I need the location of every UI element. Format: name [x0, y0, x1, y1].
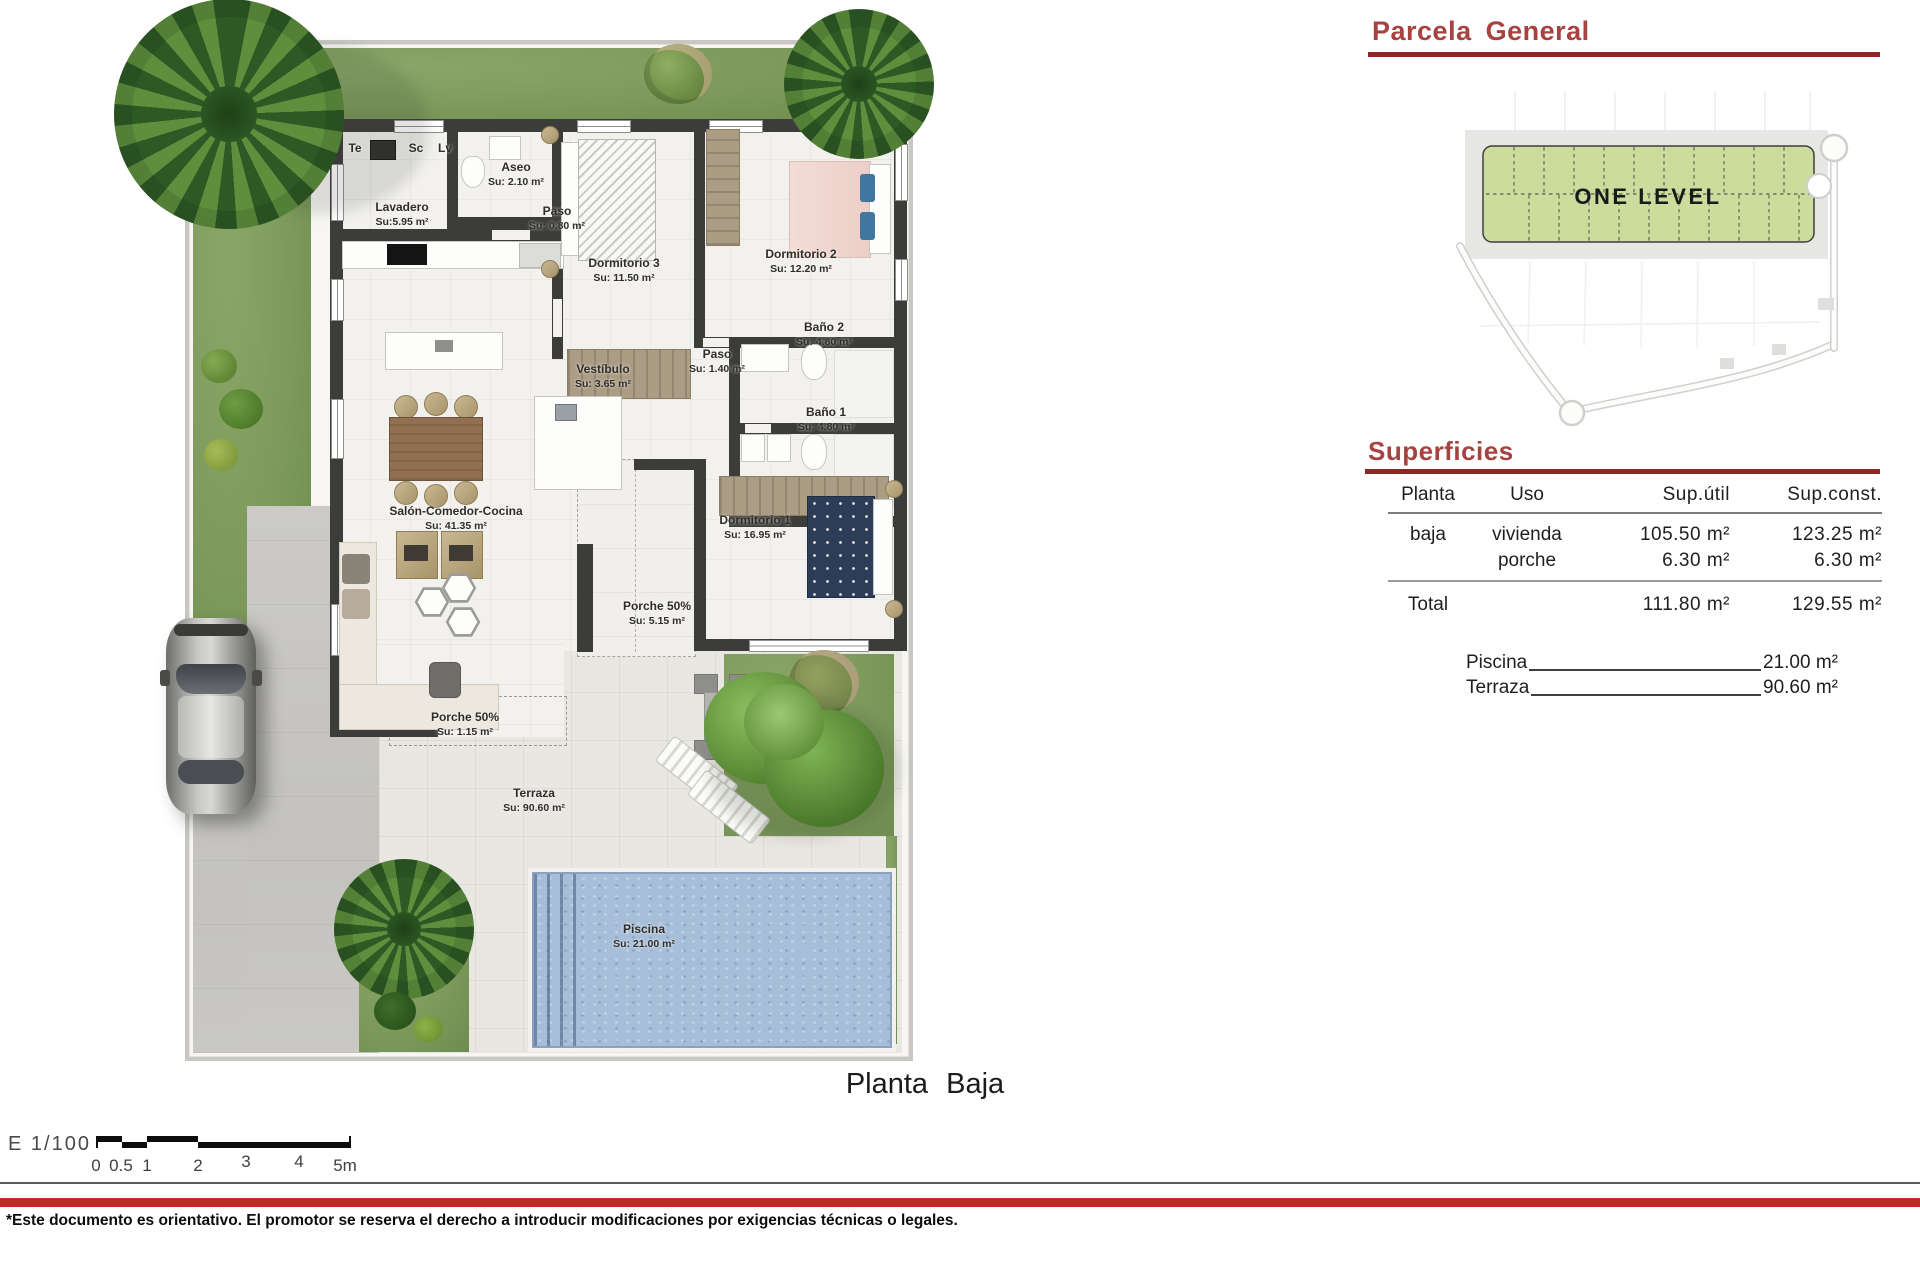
- appliance-label-sc: Sc: [409, 141, 424, 157]
- scale-tick: 1: [142, 1156, 151, 1176]
- scale-tick: 0: [91, 1156, 100, 1176]
- sofa-cushion: [342, 554, 370, 584]
- leader-line: [1529, 668, 1761, 671]
- car-icon: [166, 618, 256, 814]
- sideboard-item: [435, 340, 453, 352]
- car-mirror: [160, 670, 170, 686]
- bush-icon: [204, 439, 238, 471]
- dining-chair: [424, 392, 448, 416]
- leader-line: [1531, 693, 1761, 696]
- entrance-pillar: [577, 544, 593, 652]
- stool-cushion: [449, 545, 473, 561]
- room-label-paso-2: PasoSu: 1.40 m²: [689, 347, 745, 376]
- blue-cushion: [860, 212, 875, 240]
- floor-plan: Te Sc Lv AseoSu: 2.10 m² LavaderoSu:5.95…: [185, 40, 913, 1061]
- car-mirror: [252, 670, 262, 686]
- extra-label: Piscina: [1466, 652, 1527, 674]
- sofa-cushion: [342, 589, 370, 619]
- table-cell-total: 111.80 m²: [1586, 582, 1730, 618]
- patio-chair: [694, 674, 718, 694]
- col-header: Uso: [1468, 482, 1586, 514]
- window: [331, 399, 344, 459]
- bush-icon: [413, 1016, 443, 1042]
- superficies-table: Planta Uso Sup.útil Sup.const. baja vivi…: [1388, 482, 1882, 618]
- window: [895, 144, 908, 201]
- room-label-dormitorio-2: Dormitorio 2Su: 12.20 m²: [765, 247, 836, 276]
- footer-thin-rule: [0, 1182, 1920, 1184]
- bathroom-sink: [741, 434, 765, 462]
- extra-row-terraza: Terraza 90.60 m²: [1466, 677, 1838, 699]
- bathroom-sink: [767, 434, 791, 462]
- door-gap: [492, 230, 530, 240]
- footer-red-bar: [0, 1198, 1920, 1207]
- palm-tree-icon: [114, 0, 344, 229]
- site-label: ONE LEVEL: [1574, 184, 1721, 209]
- stool-cushion: [404, 545, 428, 561]
- table-cell: [1388, 548, 1468, 582]
- parcela-title: Parcela General: [1372, 16, 1590, 47]
- table-cell: 6.30 m²: [1586, 548, 1730, 582]
- plot-lines-top: [1515, 92, 1810, 130]
- page-title: Planta Baja: [735, 1068, 1115, 1101]
- superficies-title: Superficies: [1368, 436, 1514, 467]
- door-gap: [553, 299, 562, 337]
- bathroom-sink: [741, 344, 789, 372]
- bush-icon: [374, 992, 416, 1030]
- bed3-duvet: [578, 139, 656, 261]
- toilet: [801, 434, 827, 470]
- palm-tree-icon: [784, 9, 934, 159]
- bush-icon: [219, 389, 263, 429]
- dining-chair: [394, 395, 418, 419]
- car-grille: [174, 624, 248, 636]
- plot-lines-bottom: [1480, 262, 1820, 348]
- room-label-porche-1: Porche 50%Su: 1.15 m²: [431, 710, 499, 739]
- table-cell: 6.30 m²: [1730, 548, 1882, 582]
- island-sink: [555, 404, 577, 421]
- scale-tick: 4: [294, 1152, 303, 1172]
- scale-tick: 5m: [333, 1156, 357, 1176]
- table-cell: 105.50 m²: [1586, 514, 1730, 548]
- site-plan: ONE LEVEL: [1420, 86, 1900, 434]
- room-label-porche-5: Porche 50%Su: 5.15 m²: [623, 599, 691, 628]
- blue-cushion: [860, 174, 875, 202]
- bush-icon: [201, 349, 237, 383]
- door-gap: [703, 338, 731, 347]
- window: [331, 279, 344, 321]
- window: [895, 259, 908, 301]
- disclaimer-text: *Este documento es orientativo. El promo…: [6, 1212, 1606, 1230]
- pool-steps: [534, 874, 586, 1046]
- car-windshield: [176, 664, 246, 694]
- road-bulb: [1807, 174, 1831, 198]
- kitchen-island: [534, 396, 622, 490]
- room-label-vestibulo: VestíbuloSu: 3.65 m²: [575, 362, 631, 391]
- room-label-bano-2: Baño 2Su: 4.80 m²: [796, 320, 852, 349]
- page: Te Sc Lv AseoSu: 2.10 m² LavaderoSu:5.95…: [0, 0, 1920, 1280]
- nightstand: [541, 260, 559, 278]
- flower-bush-icon: [644, 44, 712, 104]
- col-header: Sup.útil: [1586, 482, 1730, 514]
- extra-label: Terraza: [1466, 677, 1529, 699]
- window: [577, 120, 631, 133]
- pool: [532, 872, 892, 1048]
- dining-chair: [454, 481, 478, 505]
- aseo-sink: [489, 136, 521, 160]
- room-label-piscina: PiscinaSu: 21.00 m²: [613, 922, 675, 951]
- room-label-paso: PasoSu: 0.80 m²: [529, 204, 585, 233]
- scale-bar: E 1/100 0 0.5 1 2 3 4 5m: [8, 1130, 408, 1182]
- wall: [634, 459, 696, 470]
- extra-row-piscina: Piscina 21.00 m²: [1466, 652, 1838, 674]
- bed1-pillows: [873, 499, 893, 595]
- cooktop: [387, 244, 427, 265]
- appliance-label-lv: Lv: [438, 141, 452, 157]
- scale-tick: 3: [241, 1152, 250, 1172]
- dining-chair: [454, 395, 478, 419]
- tree-icon: [744, 684, 824, 760]
- wall: [694, 119, 705, 341]
- superficies-rule: [1365, 469, 1880, 474]
- scale-tick: 0.5: [109, 1156, 133, 1176]
- room-label-lavadero: LavaderoSu:5.95 m²: [375, 200, 428, 229]
- room-label-dormitorio-3: Dormitorio 3Su: 11.50 m²: [588, 256, 659, 285]
- table-cell: baja: [1388, 514, 1468, 548]
- bed1-duvet: [807, 496, 875, 598]
- appliance-label-te: Te: [348, 141, 361, 157]
- wall: [694, 459, 706, 651]
- extra-value: 21.00 m²: [1763, 652, 1838, 674]
- scale-ruler: [96, 1136, 352, 1148]
- scale-tick: 2: [193, 1156, 202, 1176]
- sliding-door: [749, 640, 869, 652]
- aseo-toilet: [461, 156, 485, 188]
- room-label-salon: Salón-Comedor-CocinaSu: 41.35 m²: [389, 504, 522, 533]
- door-gap: [745, 424, 771, 433]
- dining-table: [389, 417, 483, 481]
- toilet: [801, 344, 827, 380]
- car-roof: [178, 696, 244, 758]
- table-cell: porche: [1468, 548, 1586, 582]
- room-label-aseo: AseoSu: 2.10 m²: [488, 160, 544, 189]
- palm-tree-icon: [334, 859, 474, 999]
- dining-chair: [394, 481, 418, 505]
- extra-value: 90.60 m²: [1763, 677, 1838, 699]
- table-cell: [1468, 582, 1586, 618]
- table-cell-total: Total: [1388, 582, 1468, 618]
- room-label-terraza: TerrazaSu: 90.60 m²: [503, 786, 565, 815]
- col-header: Planta: [1388, 482, 1468, 514]
- scale-label: E 1/100: [8, 1133, 91, 1156]
- table-cell: vivienda: [1468, 514, 1586, 548]
- parcela-rule: [1368, 52, 1880, 57]
- col-header: Sup.const.: [1730, 482, 1882, 514]
- table-cell: 123.25 m²: [1730, 514, 1882, 548]
- table-cell-total: 129.55 m²: [1730, 582, 1882, 618]
- bed2-duvet: [789, 161, 871, 258]
- room-label-bano-1: Baño 1Su: 4.80 m²: [798, 405, 854, 434]
- nightstand: [885, 480, 903, 498]
- room-label-dormitorio-1: Dormitorio 1Su: 16.95 m²: [719, 513, 790, 542]
- armchair: [429, 662, 461, 698]
- wardrobe: [706, 129, 740, 246]
- nightstand: [541, 126, 559, 144]
- extras-list: Piscina 21.00 m² Terraza 90.60 m²: [1466, 652, 1838, 702]
- nightstand: [885, 600, 903, 618]
- car-rear-glass: [178, 760, 244, 784]
